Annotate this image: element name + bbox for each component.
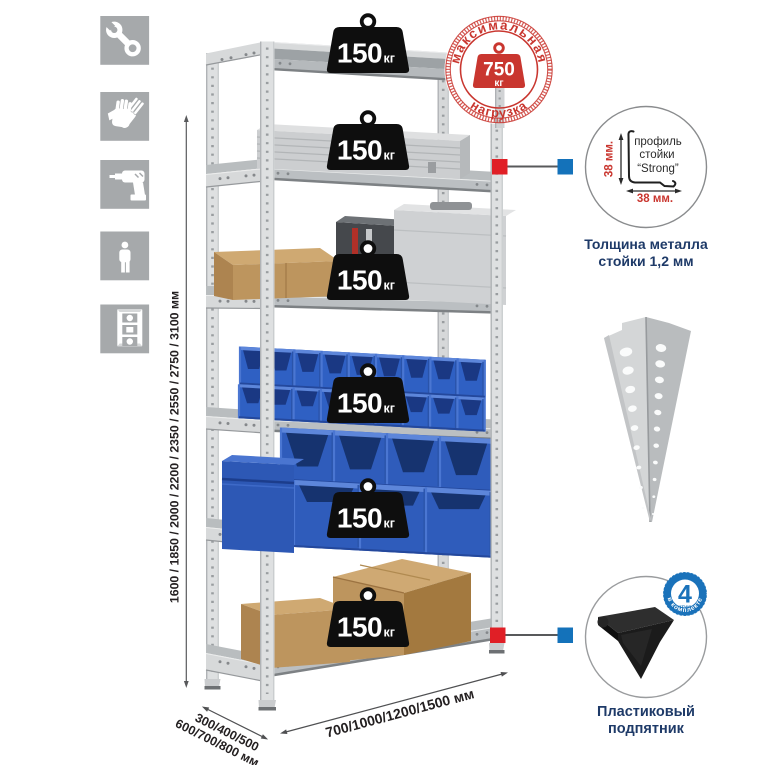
svg-text:Толщина металла: Толщина металла [584, 236, 708, 252]
svg-text:кг: кг [494, 78, 503, 89]
svg-text:Пластиковый: Пластиковый [597, 704, 695, 720]
svg-text:38 мм.: 38 мм. [604, 141, 616, 177]
svg-text:1600 / 1850 / 2000 / 2200 / 23: 1600 / 1850 / 2000 / 2200 / 2350 / 2550 … [168, 291, 182, 603]
svg-text:“Strong”: “Strong” [637, 163, 679, 175]
svg-text:профиль: профиль [634, 136, 682, 148]
svg-text:38 мм.: 38 мм. [637, 193, 673, 205]
svg-text:подпятник: подпятник [608, 721, 685, 737]
svg-text:стойки: стойки [639, 149, 674, 161]
svg-text:стойки 1,2 мм: стойки 1,2 мм [598, 253, 693, 269]
